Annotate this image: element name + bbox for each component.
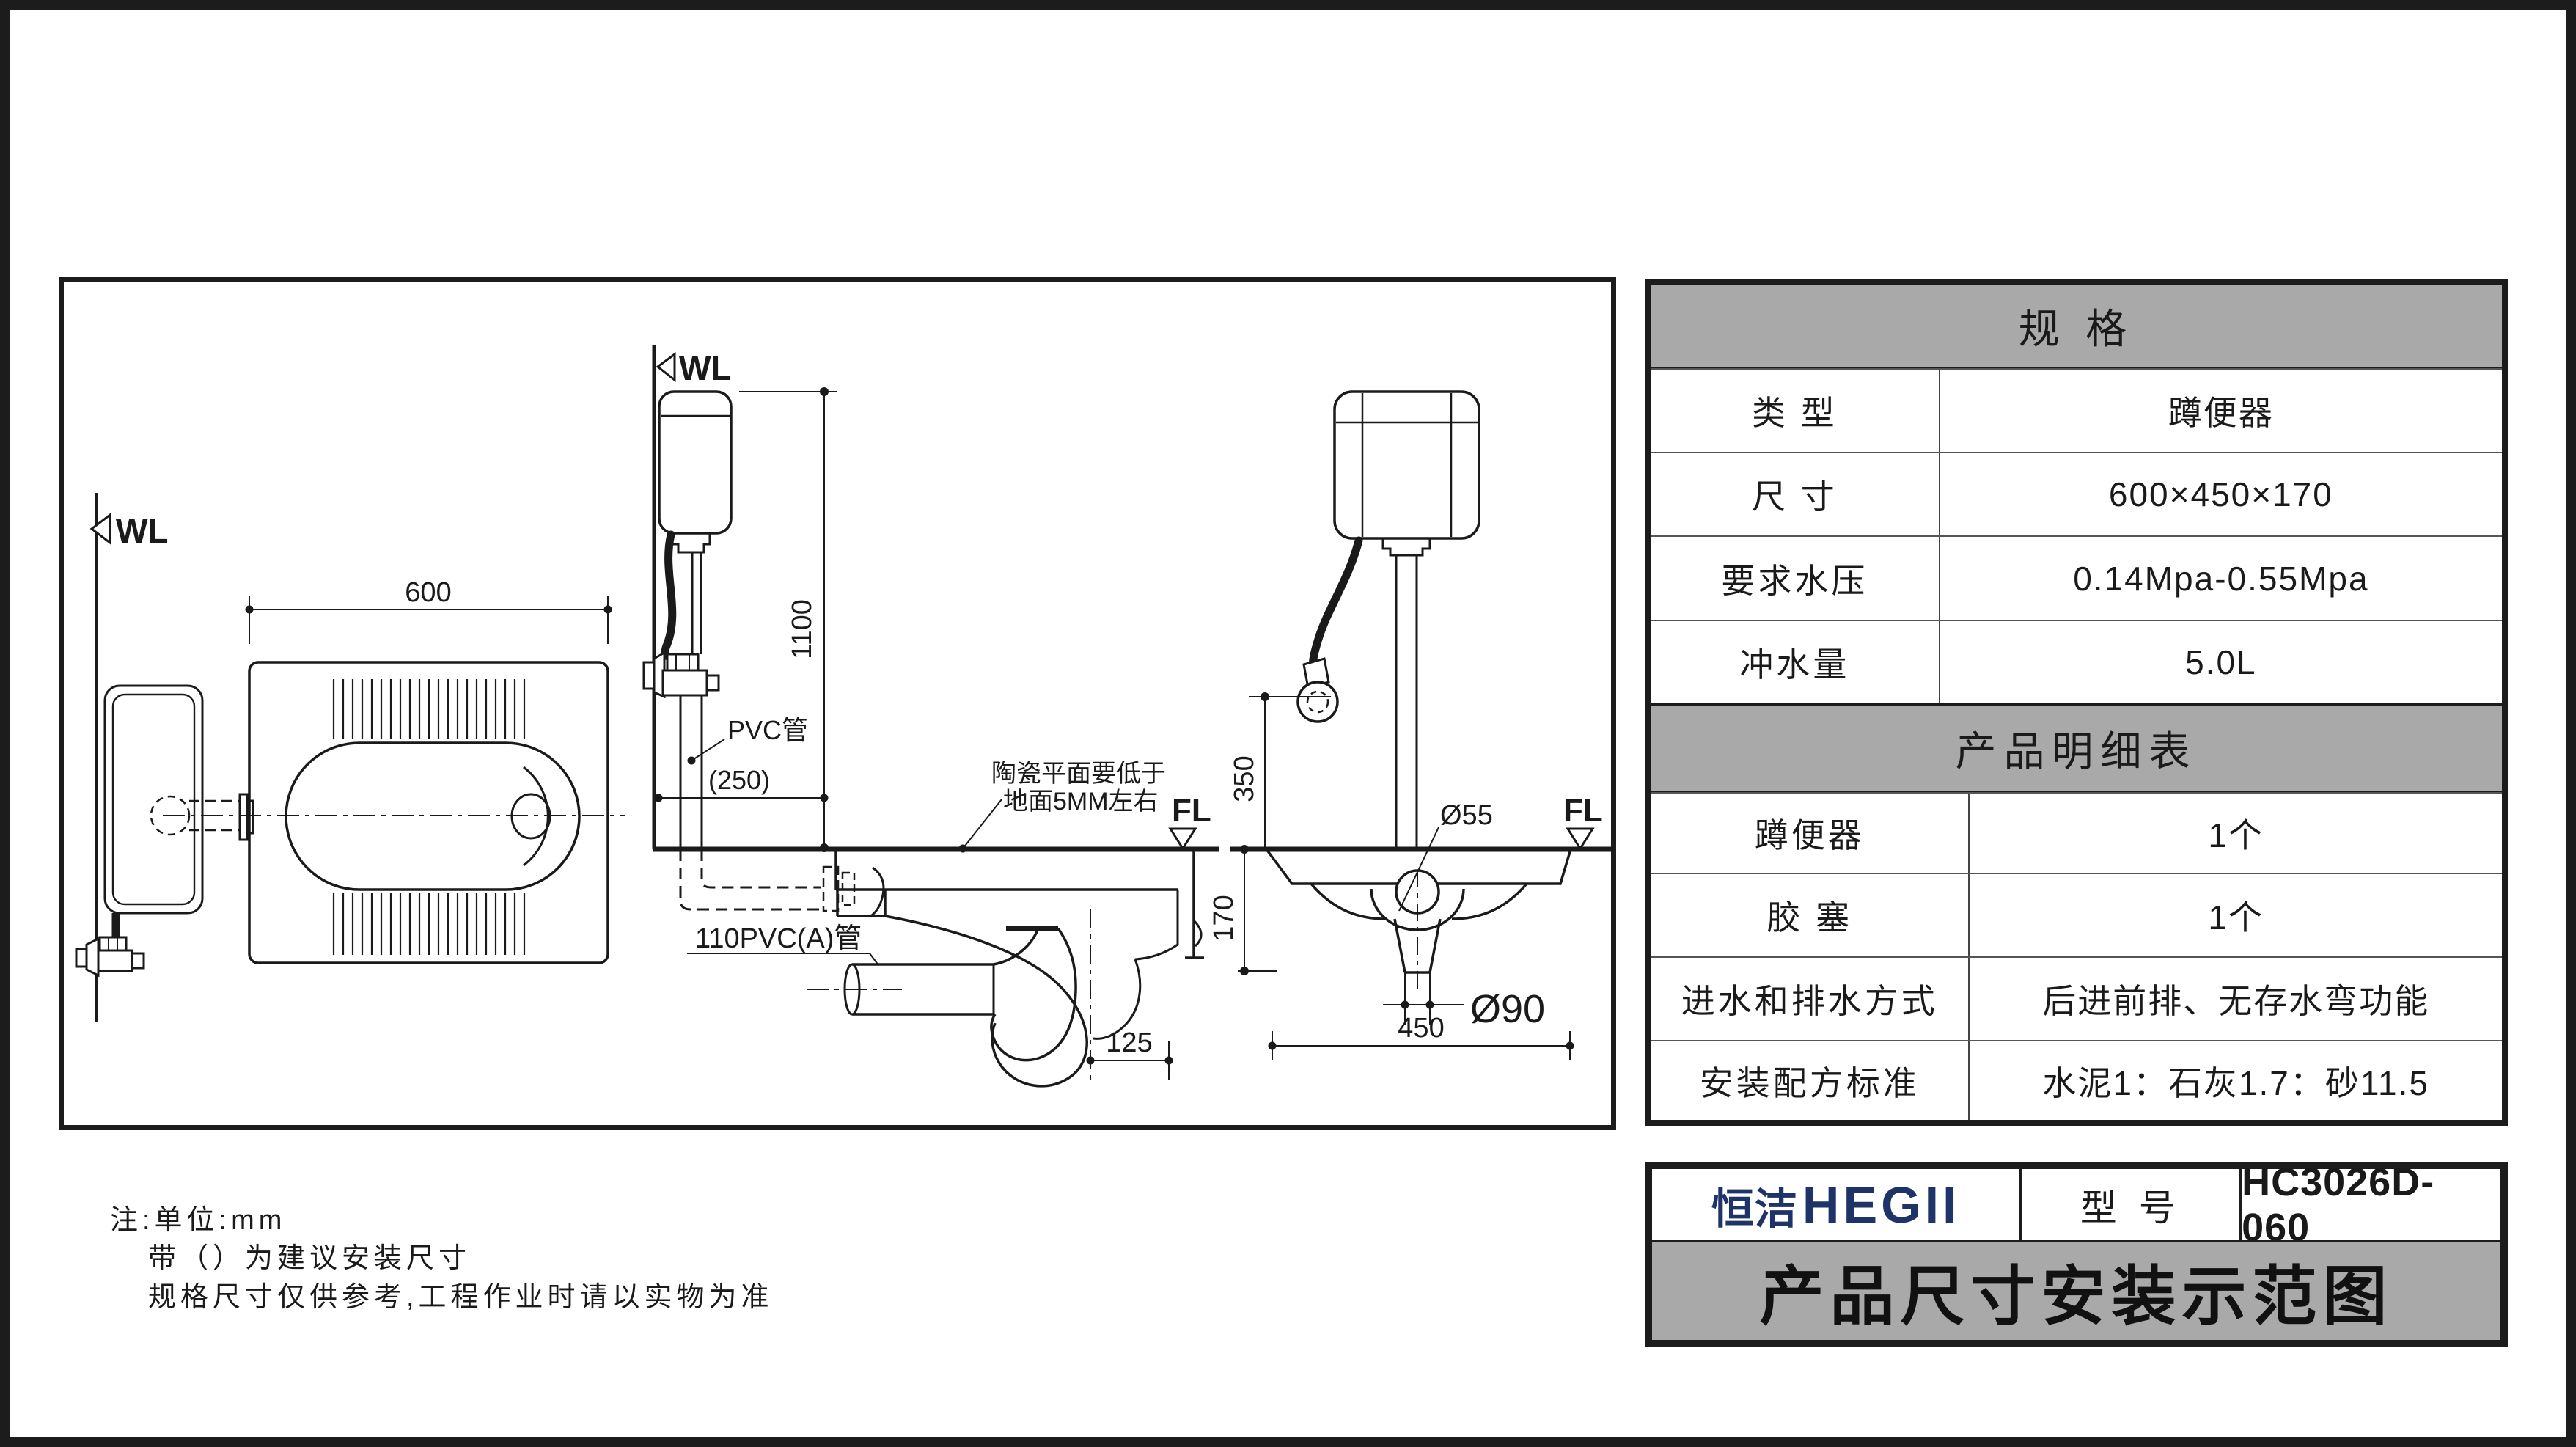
table-row-inlet-outlet: 进水和排水方式 后进前排、无存水弯功能: [1651, 956, 2502, 1040]
table-row-type: 类 型 蹲便器: [1651, 368, 2502, 452]
row-value: 0.14Mpa-0.55Mpa: [1940, 537, 2502, 620]
brand-logo: 恒洁 HEGII: [1652, 1169, 2022, 1240]
row-value: 蹲便器: [1940, 370, 2502, 452]
cistern-section: [659, 392, 731, 533]
table-row-rubber-plug: 胶 塞 1个: [1651, 873, 2502, 956]
dim-350-label: 350: [1229, 755, 1260, 802]
wall-level-triangle-icon: [92, 515, 110, 543]
sheet-title: 产品尺寸安装示范图: [1652, 1240, 2500, 1340]
trap-outer: [885, 916, 1087, 1086]
wall-level-label: WL: [116, 512, 169, 550]
table-row-pan: 蹲便器 1个: [1651, 792, 2502, 873]
cistern-plan: [105, 686, 202, 913]
dim-450-label: 450: [1398, 1013, 1444, 1044]
floor-level-label: FL: [1563, 793, 1603, 829]
drawing-notes: 注:单位:mm 带（）为建议安装尺寸 规格尺寸仅供参考,工程作业时请以实物为准: [110, 1201, 774, 1316]
wall-level-label: WL: [679, 349, 732, 387]
floor-level-label: FL: [1172, 793, 1211, 829]
supply-hose: [665, 535, 673, 657]
brand-logo-cn: 恒洁: [1711, 1174, 1798, 1236]
spec-table: 规 格 类 型 蹲便器 尺 寸 600×450×170 要求水压 0.14Mpa…: [1645, 279, 2508, 1126]
dia-90-label: Ø90: [1470, 987, 1545, 1031]
row-value: 1个: [1970, 794, 2502, 873]
water-inlet-ring: [1298, 682, 1337, 722]
pan-ribs: [334, 679, 524, 955]
flush-valve-neck: [672, 533, 710, 552]
title-block: 恒洁 HEGII 型 号 HC3026D-060 产品尺寸安装示范图: [1645, 1162, 2508, 1347]
row-value: 水泥1：石灰1.7：砂11.5: [1970, 1041, 2502, 1120]
drain-pipe: [845, 964, 994, 1014]
ceramic-note-line2: 地面5MM左右: [1003, 788, 1159, 816]
supply-hose-front: [1313, 541, 1359, 669]
row-value: 5.0L: [1940, 621, 2502, 703]
model-label: 型 号: [2022, 1169, 2242, 1240]
plan-view: [76, 493, 625, 1022]
floor-level-triangle-icon: [1170, 829, 1195, 849]
dim-250-label: (250): [708, 765, 770, 795]
angle-valve-section: [644, 653, 719, 697]
table-row-size: 尺 寸 600×450×170: [1651, 452, 2502, 535]
row-label: 安装配方标准: [1651, 1041, 1970, 1120]
row-label: 要求水压: [1651, 537, 1940, 620]
trap-inner: [991, 928, 1076, 1060]
model-value: HC3026D-060: [2242, 1169, 2500, 1240]
table-row-pressure: 要求水压 0.14Mpa-0.55Mpa: [1651, 535, 2502, 620]
spec-table-header: 规 格: [1651, 285, 2502, 368]
dia-55-label: Ø55: [1440, 800, 1493, 831]
note-units: 注:单位:mm: [110, 1201, 774, 1239]
row-label: 类 型: [1651, 370, 1940, 452]
dim-170-label: 170: [1208, 895, 1239, 941]
floor-level-triangle-icon: [1568, 829, 1593, 849]
table-row-mortar-standard: 安装配方标准 水泥1：石灰1.7：砂11.5: [1651, 1040, 2502, 1120]
dim-125-label: 125: [1106, 1027, 1152, 1058]
row-label: 胶 塞: [1651, 874, 1970, 956]
brand-logo-en: HEGII: [1802, 1176, 1961, 1234]
row-value: 1个: [1970, 874, 2502, 956]
note-reference-only: 规格尺寸仅供参考,工程作业时请以实物为准: [110, 1278, 774, 1316]
dim-1100-label: 1100: [787, 599, 818, 659]
row-value: 后进前排、无存水弯功能: [1970, 958, 2502, 1040]
pvc-pipe-label: PVC管: [727, 715, 808, 745]
row-label: 进水和排水方式: [1651, 958, 1970, 1040]
drain-pipe-label: 110PVC(A)管: [695, 923, 862, 954]
pvc-leader: [691, 739, 724, 761]
pan-front-section: [1266, 849, 1571, 972]
row-label: 尺 寸: [1651, 453, 1940, 535]
angle-valve-plan: [76, 913, 144, 975]
wall-level-triangle-icon: [658, 354, 675, 380]
row-value: 600×450×170: [1940, 453, 2502, 535]
front-view: [1230, 392, 1615, 1060]
detail-table-header: 产品明细表: [1651, 703, 2502, 792]
cistern-front: [1335, 392, 1479, 538]
dim-600-label: 600: [405, 577, 451, 608]
row-label: 蹲便器: [1651, 794, 1970, 873]
note-suggested-dims: 带（）为建议安装尺寸: [110, 1239, 774, 1278]
ceramic-note-line1: 陶瓷平面要低于: [991, 760, 1166, 788]
row-label: 冲水量: [1651, 621, 1940, 703]
table-row-flush-volume: 冲水量 5.0L: [1651, 620, 2502, 703]
pan-spigot: [870, 868, 884, 917]
